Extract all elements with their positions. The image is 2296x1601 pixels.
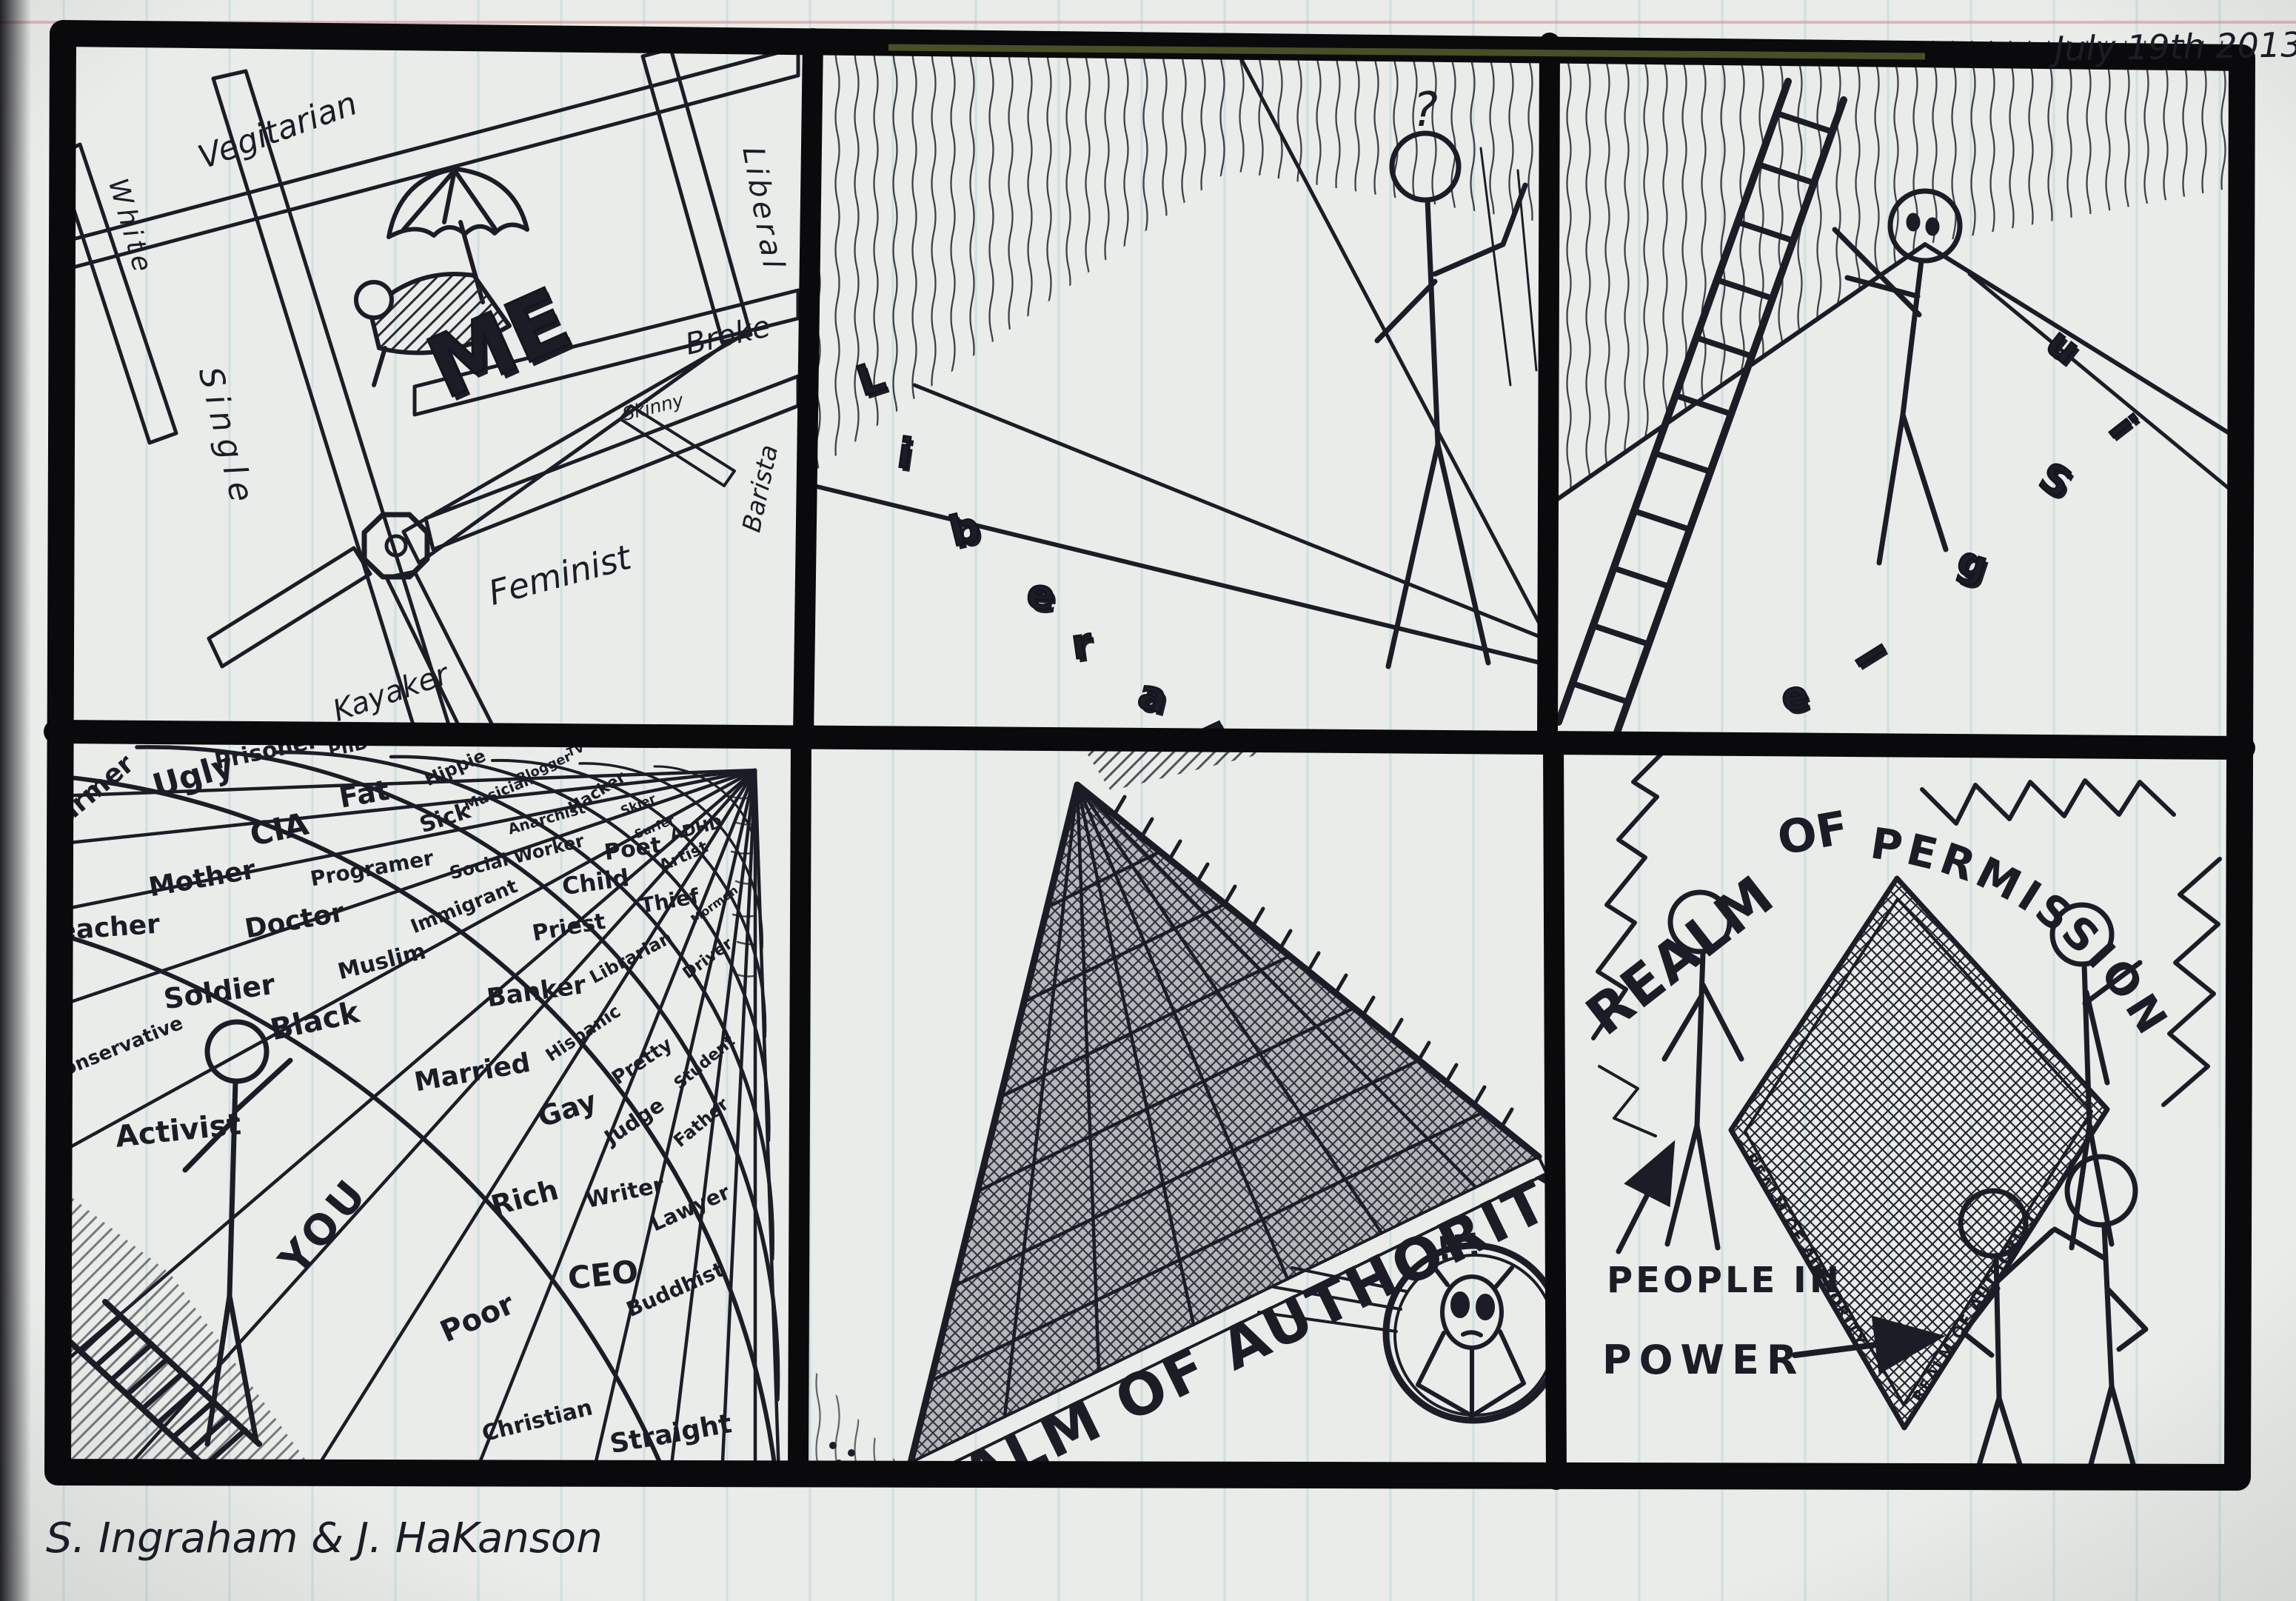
photographed-comic-page: Vegitarian White Single Liberal Broke Sk… <box>0 0 2296 1601</box>
comic-drawing: Vegitarian White Single Liberal Broke Sk… <box>0 0 2296 1601</box>
vignette <box>0 0 2296 1601</box>
